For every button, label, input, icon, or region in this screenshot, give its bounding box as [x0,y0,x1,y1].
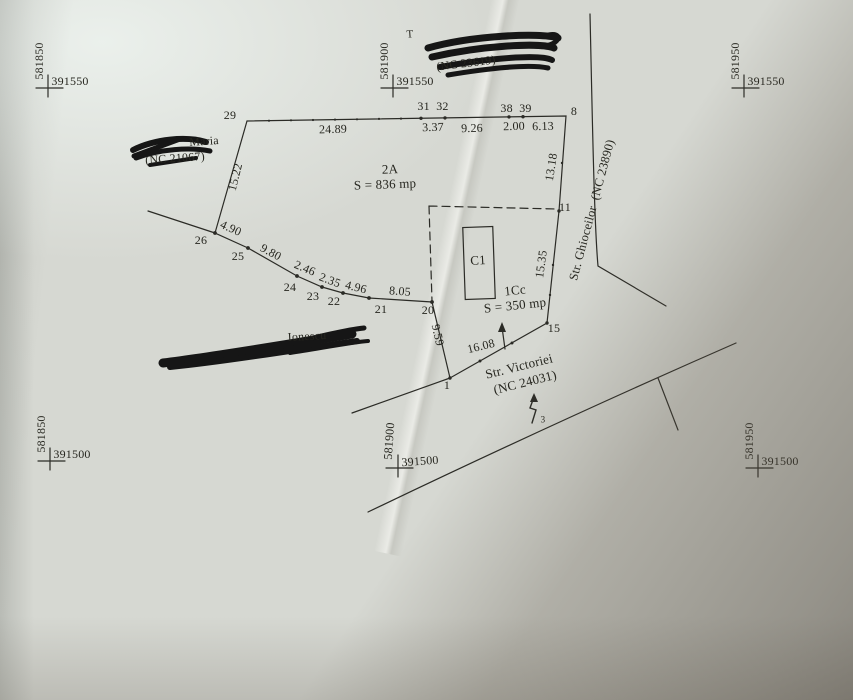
street-victoriei-upper-edge [352,378,450,413]
point-label-31-32: 31 32 [417,100,448,112]
point-label-29: 29 [224,109,236,121]
parcel-2a-area: S = 836 mp [354,176,417,191]
power-pole-arrow-head [530,393,538,402]
distance-label-9-26: 9.26 [461,122,483,135]
point-label-24: 24 [284,281,296,293]
point-label-25: 25 [232,250,244,262]
point-label-8: 8 [571,105,577,117]
grid-easting-top-center: 581900 [378,42,390,79]
neighbor-north-name-fragment: T [406,29,414,40]
point-label-21: 21 [375,303,387,315]
grid-easting-top-right: 581950 [729,42,741,79]
point-label-23: 23 [307,290,319,302]
building-c1-label: C1 [470,253,486,267]
street-victoriei-side-branch [658,378,678,430]
point-label-20: 20 [422,304,434,316]
redaction-scribble-south-neighbor [163,328,368,367]
neighbor-south-name: Ionescu [287,329,326,343]
power-pole-number: 3 [541,416,546,425]
distance-label-6-13: 6.13 [532,120,554,133]
grid-northing-top-center: 391550 [396,75,433,87]
parcel-1cc-name: 1Cc [504,282,527,297]
grid-easting-bottom-center: 581900 [382,422,397,460]
point-label-11: 11 [559,201,571,213]
distance-label-2-00: 2.00 [503,120,525,133]
point-label-15: 15 [548,322,560,334]
photographed-cadastral-plan: 581850 391550 581900 391550 581950 39155… [0,0,853,700]
grid-northing-bottom-center: 391500 [401,454,439,469]
grid-northing-top-left: 391550 [51,75,88,87]
grid-easting-top-left: 581850 [33,42,45,79]
distance-label-24-89: 24.89 [319,123,347,136]
distance-label-3-37: 3.37 [422,121,444,134]
parcel-2a-name: 2A [382,162,399,176]
point-label-1: 1 [444,379,450,391]
grid-easting-bottom-left: 581850 [35,415,47,452]
grid-easting-bottom-right: 581950 [743,422,755,459]
grid-northing-bottom-right: 391500 [761,455,798,467]
grid-northing-bottom-left: 391500 [53,448,90,460]
point-label-26: 26 [195,234,207,246]
grid-northing-top-right: 391550 [747,75,784,87]
neighbor-boundary-west [148,211,215,233]
distance-label-15-35: 15.35 [533,249,549,278]
point-label-22: 22 [328,295,340,307]
distance-label-8-05: 8.05 [389,284,412,297]
neighbor-west-name: Maria [189,134,219,148]
access-arrow-head [498,322,506,332]
point-label-38-39: 38 39 [500,102,531,114]
